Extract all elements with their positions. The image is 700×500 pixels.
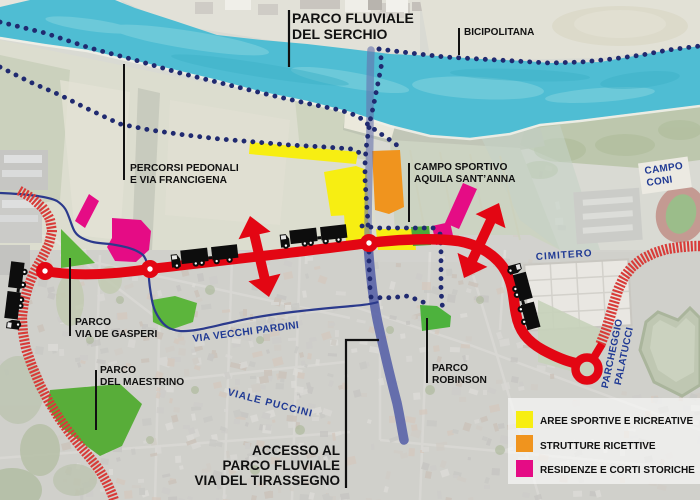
svg-text:DEL SERCHIO: DEL SERCHIO: [292, 26, 388, 42]
svg-text:STRUTTURE RICETTIVE: STRUTTURE RICETTIVE: [540, 441, 656, 452]
svg-text:PERCORSI PEDONALI: PERCORSI PEDONALI: [130, 163, 239, 174]
svg-text:VIA DEL TIRASSEGNO: VIA DEL TIRASSEGNO: [194, 473, 340, 488]
svg-text:AREE SPORTIVE E RICREATIVE: AREE SPORTIVE E RICREATIVE: [540, 416, 694, 427]
svg-text:AQUILA SANT’ANNA: AQUILA SANT’ANNA: [414, 174, 516, 185]
svg-text:PARCO: PARCO: [75, 317, 111, 328]
svg-text:E VIA FRANCIGENA: E VIA FRANCIGENA: [130, 175, 228, 186]
svg-text:PARCO FLUVIALE: PARCO FLUVIALE: [223, 458, 341, 473]
svg-text:CAMPO SPORTIVO: CAMPO SPORTIVO: [414, 162, 507, 173]
svg-text:BICIPOLITANA: BICIPOLITANA: [464, 27, 534, 38]
svg-text:PARCO: PARCO: [432, 363, 468, 374]
svg-text:ACCESSO AL: ACCESSO AL: [252, 443, 340, 458]
svg-text:PARCO: PARCO: [100, 365, 136, 376]
svg-text:ROBINSON: ROBINSON: [432, 375, 487, 386]
svg-text:DEL MAESTRINO: DEL MAESTRINO: [100, 377, 184, 388]
svg-text:RESIDENZE E CORTI STORICHE: RESIDENZE E CORTI STORICHE: [540, 465, 695, 476]
svg-text:VIA DE GASPERI: VIA DE GASPERI: [75, 329, 157, 340]
svg-text:PARCO FLUVIALE: PARCO FLUVIALE: [292, 10, 414, 26]
